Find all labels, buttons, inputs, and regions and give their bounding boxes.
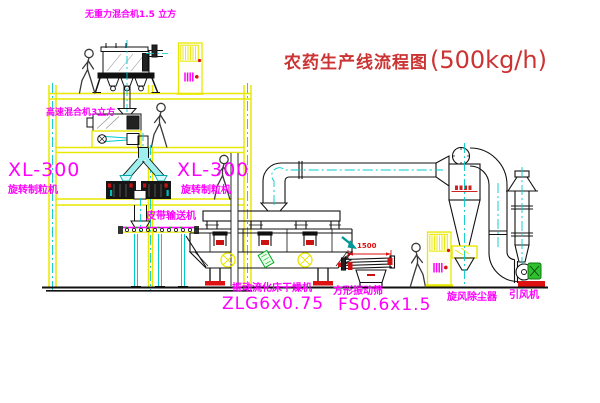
belt-conveyor (118, 226, 199, 287)
induced-draft-fan (516, 263, 545, 287)
dryer-to-sieve-arrow (342, 237, 357, 249)
worker-icon (410, 243, 425, 287)
worker-icon (152, 103, 167, 147)
label-granulator-left-name: 旋转制粒机 (8, 186, 58, 196)
title-text: 农药生产线流程图 (284, 48, 428, 73)
label-granulator-right-model: XL-300 (177, 161, 249, 180)
label-sieve-model: FS0.6x1.5 (338, 297, 431, 314)
label-gravity-mixer: 无重力混合机1.5 立方 (85, 11, 176, 20)
label-dryer-model: ZLG6x0.75 (222, 296, 324, 313)
diagram-title: 农药生产线流程图 (500kg/h) (284, 46, 547, 74)
dryer-green-tag (258, 250, 274, 267)
title-capacity: (500kg/h) (430, 46, 547, 74)
control-cabinet-icon (426, 232, 454, 285)
label-fan: 引风机 (509, 291, 539, 301)
process-flow-diagram: 无重力混合机1.5 立方 农药生产线流程图 (500kg/h) 高速混合机3立方… (0, 0, 600, 403)
granulator-discharge (134, 191, 146, 200)
label-cyclone: 旋风除尘器 (447, 293, 497, 303)
label-belt-conveyor: 皮带输送机 (146, 212, 196, 222)
label-dryer-name: 振动流化床干燥机 (232, 284, 312, 294)
label-granulator-right-name: 旋转制粒机 (181, 186, 231, 196)
control-cabinet-icon (177, 43, 205, 94)
granulator-left (106, 181, 136, 199)
worker-icon (80, 49, 95, 93)
label-granulator-left-model: XL-300 (8, 161, 80, 180)
label-high-speed-mixer: 高速混合机3立方 (46, 109, 115, 118)
label-sieve-dimension: 1500 (357, 243, 376, 250)
duct-centerline (272, 168, 443, 205)
